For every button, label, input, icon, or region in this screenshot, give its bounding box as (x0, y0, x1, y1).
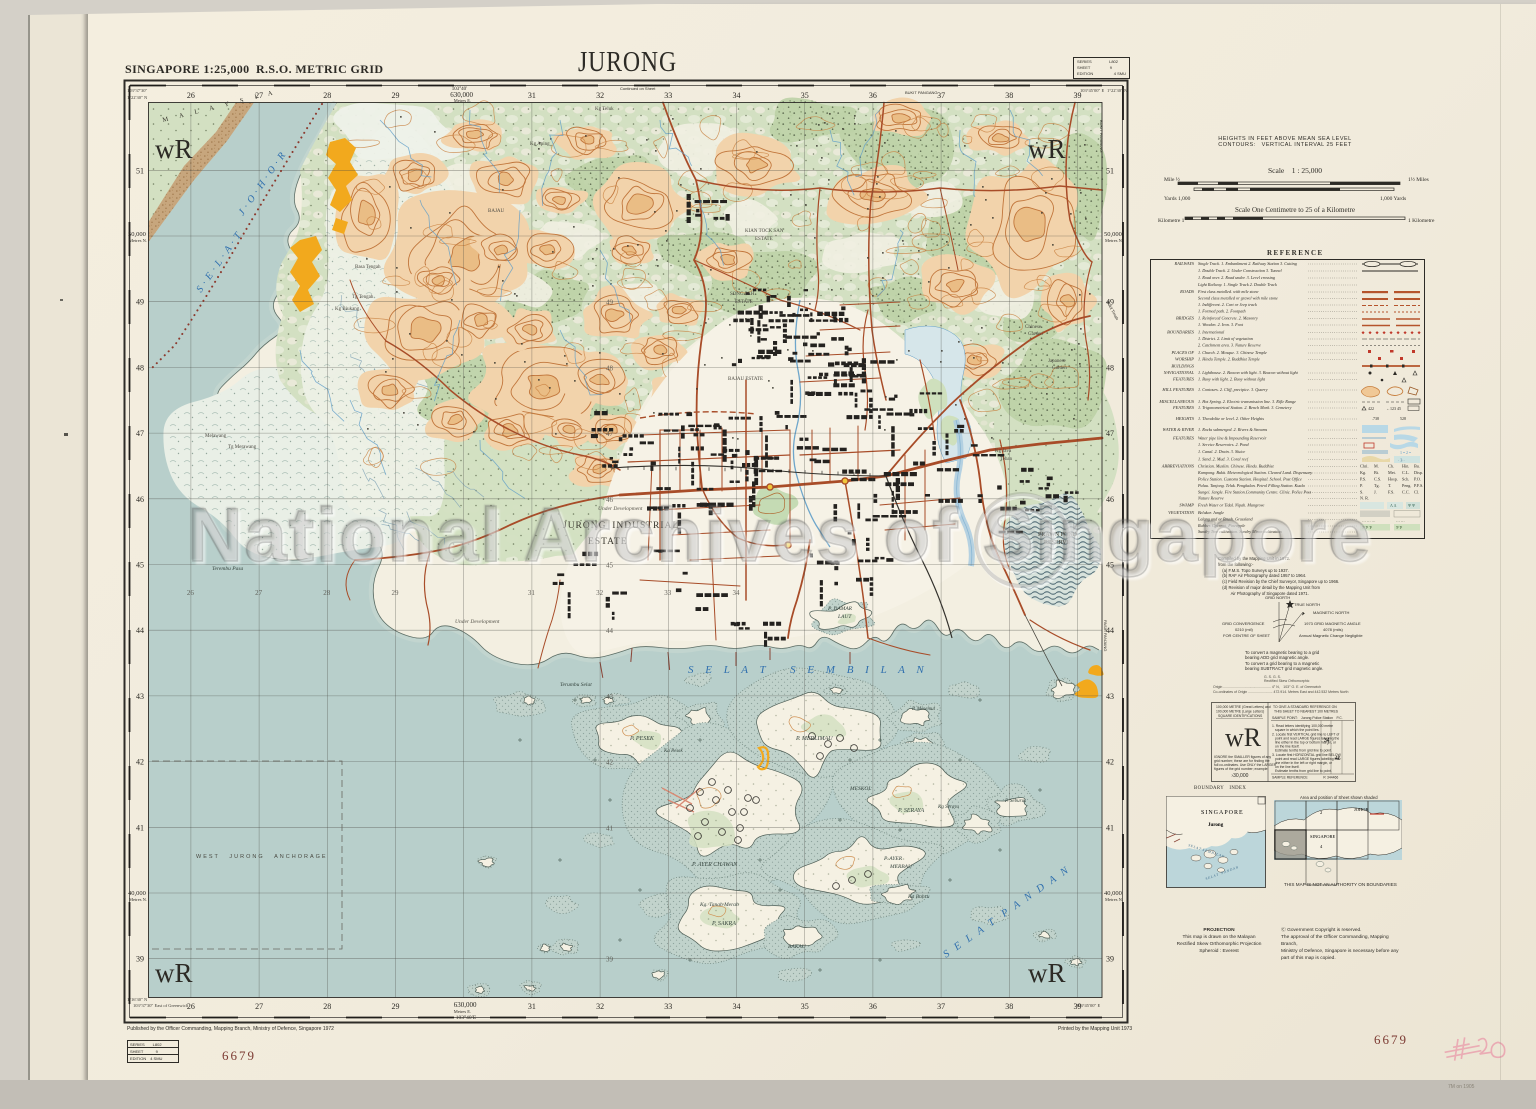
svg-text:MAGNETIC NORTH: MAGNETIC NORTH (1313, 610, 1349, 615)
svg-text:Chinese: Chinese (1025, 325, 1042, 330)
svg-text:HEIGHTS: HEIGHTS (1175, 416, 1195, 421)
svg-text:1½ Miles: 1½ Miles (1408, 176, 1429, 183)
svg-text:Disp.: Disp. (1414, 470, 1423, 475)
svg-text:Garden: Garden (1052, 366, 1067, 371)
svg-text:630,000: 630,000 (454, 1001, 477, 1009)
svg-text:M.: M. (1374, 464, 1379, 469)
svg-text:48: 48 (606, 364, 614, 372)
svg-text:Tg Merawang: Tg Merawang (228, 445, 257, 450)
svg-text:Mile ½: Mile ½ (1164, 176, 1180, 183)
svg-text:P. SAKRA: P. SAKRA (711, 921, 736, 927)
svg-text:103°37′30″: 103°37′30″ (127, 88, 148, 93)
svg-text:35: 35 (801, 91, 809, 100)
svg-text:37: 37 (937, 1002, 945, 1011)
svg-text:40,000: 40,000 (128, 890, 146, 897)
svg-text:50,000: 50,000 (1104, 231, 1122, 238)
svg-text:Jurong: Jurong (1208, 823, 1224, 828)
svg-text:Water pipe line & Impounding: Water pipe line & Impounding Reservoir (1198, 436, 1267, 441)
svg-text:1. Rocks submerged. 2. River: 1. Rocks submerged. 2. Rivers & Streams (1198, 427, 1267, 432)
svg-text:Scale One Centimetre to 25 of: Scale One Centimetre to 25 of a Kilometr… (1235, 206, 1355, 214)
svg-text:Tg Tengah: Tg Tengah (352, 295, 374, 300)
svg-text:34: 34 (733, 589, 741, 597)
svg-text:WATER & RIVER: WATER & RIVER (1163, 427, 1195, 432)
svg-text:38: 38 (1005, 91, 1013, 100)
svg-text:1. International: 1. International (1198, 330, 1225, 335)
svg-text:wR: wR (1028, 134, 1066, 164)
svg-text:47: 47 (1106, 429, 1114, 438)
svg-text:BOUNDARIES: BOUNDARIES (1167, 330, 1195, 335)
svg-text:49: 49 (136, 298, 144, 307)
svg-text:39: 39 (606, 956, 614, 964)
svg-text:wR: wR (1028, 958, 1066, 988)
svg-text:43: 43 (136, 692, 144, 701)
svg-text:35: 35 (801, 1002, 809, 1011)
svg-text:P. DAMAR: P. DAMAR (827, 606, 853, 612)
svg-text:1°16′30″ N: 1°16′30″ N (127, 997, 148, 1002)
svg-text:S E L A T S E M B I L A N: S E L A T S E M B I L A N (688, 664, 928, 676)
svg-text:Metres N.: Metres N. (1105, 238, 1123, 243)
svg-text:BUILDINGS: BUILDINGS (1171, 364, 1194, 369)
svg-text:33: 33 (664, 91, 672, 100)
svg-text:31: 31 (528, 589, 536, 597)
svg-text:1. District. 2. Limit of vege: 1. District. 2. Limit of vegetation (1198, 336, 1253, 341)
svg-text:32: 32 (596, 589, 604, 597)
svg-text:1. Lighthouse. 2. Beacon with: 1. Lighthouse. 2. Beacon with light. 3. … (1198, 370, 1299, 375)
svg-text:37: 37 (937, 91, 945, 100)
svg-text:27: 27 (255, 91, 263, 100)
svg-text:1. Hot Spring. 2. Electric tr: 1. Hot Spring. 2. Electric transmission … (1198, 399, 1296, 404)
svg-text:wR: wR (155, 134, 193, 164)
svg-text:JOHOR: JOHOR (1354, 807, 1369, 812)
svg-text:.738: .738 (1372, 416, 1379, 421)
svg-text:Garden: Garden (1028, 332, 1043, 337)
svg-text:103°37′30″ East of Greenwich: 103°37′30″ East of Greenwich (133, 1003, 189, 1008)
svg-text:R 344466: R 344466 (1323, 776, 1338, 780)
svg-text:29: 29 (392, 589, 400, 597)
svg-text:47: 47 (606, 430, 614, 438)
svg-text:1. Hindu Temple. 2. Buddhist: 1. Hindu Temple. 2. Buddhist Temple (1198, 357, 1260, 362)
svg-text:51: 51 (1106, 166, 1114, 175)
svg-text:100,000 METRE (Great Letters): 100,000 METRE (Great Letters) and (1216, 705, 1271, 709)
svg-text:Kg Seraya: Kg Seraya (937, 805, 959, 810)
svg-text:47: 47 (136, 429, 144, 438)
svg-text:Terumbu Selat: Terumbu Selat (560, 682, 592, 688)
svg-text:39: 39 (136, 955, 144, 964)
svg-text:P. PESEK: P. PESEK (629, 736, 655, 742)
svg-text:SQUARE IDENTIFICATIONS: SQUARE IDENTIFICATIONS (1218, 714, 1263, 718)
svg-text:wR: wR (155, 958, 193, 988)
svg-text:WORSHIP: WORSHIP (1175, 357, 1194, 362)
svg-text:Second class metalled or grav: Second class metalled or gravel with mil… (1198, 296, 1278, 301)
svg-text:32: 32 (596, 1002, 604, 1011)
svg-text:Chri.: Chri. (1360, 464, 1369, 469)
svg-text:Under Development: Under Development (455, 619, 500, 625)
svg-text:Light Railway. 1. Single Tra: Light Railway. 1. Single Track 2. Double… (1197, 282, 1277, 287)
svg-text:P.O.: P.O. (1414, 477, 1421, 482)
svg-text:34: 34 (1324, 738, 1330, 744)
svg-text:BAKAU: BAKAU (788, 944, 807, 950)
svg-text:1. Contours. 2. Cliff, precip: 1. Contours. 2. Cliff, precipice. 3. Qua… (1198, 387, 1268, 393)
svg-text:1. Canal. 2. Drain. 3. Sluic: 1. Canal. 2. Drain. 3. Sluice (1198, 449, 1245, 454)
svg-text:MISCELLANEOUS: MISCELLANEOUS (1158, 399, 1194, 404)
svg-text:26: 26 (187, 91, 195, 100)
svg-text:Japanese: Japanese (1048, 359, 1067, 364)
svg-text:GRID NORTH: GRID NORTH (1265, 595, 1290, 600)
svg-text:SINGAPORE: SINGAPORE (1201, 810, 1244, 816)
svg-text:27: 27 (255, 589, 263, 597)
svg-text:41: 41 (136, 823, 144, 832)
svg-text:P. SERAYA: P. SERAYA (897, 808, 924, 814)
svg-text:103°45′00″ E: 103°45′00″ E (1080, 88, 1105, 93)
svg-text:4078 (mils): 4078 (mils) (1323, 627, 1343, 632)
svg-text:BRIDGES: BRIDGES (1176, 316, 1195, 321)
svg-text:P.F.S.: P.F.S. (1414, 483, 1423, 488)
svg-text:42: 42 (1106, 758, 1114, 767)
svg-text:28: 28 (323, 91, 331, 100)
svg-text:Metres N.: Metres N. (1105, 897, 1123, 902)
svg-text:1. Service Reservoirs. 2. Po: 1. Service Reservoirs. 2. Pond (1198, 442, 1249, 447)
svg-text:1. Wooden. 2. Iron. 3. Foot: 1. Wooden. 2. Iron. 3. Foot (1198, 322, 1244, 327)
svg-text:SAMPLE REFERENCE: SAMPLE REFERENCE (1272, 776, 1308, 780)
svg-text:P. Mesemut: P. Mesemut (911, 707, 936, 712)
svg-text:HILL FEATURES: HILL FEATURES (1161, 387, 1194, 392)
svg-text:square in which the point lies: square in which the point lies. (1275, 728, 1320, 732)
svg-text:P. MERLIMAU: P. MERLIMAU (795, 736, 833, 742)
svg-text:T.: T. (1388, 483, 1391, 488)
svg-text:28: 28 (323, 589, 331, 597)
svg-text:43: 43 (606, 693, 614, 701)
svg-text:26: 26 (187, 589, 195, 597)
svg-text:KIAN TOCK SAN: KIAN TOCK SAN (745, 229, 784, 234)
svg-text:TO GIVE A STANDARD REFERENCE O: TO GIVE A STANDARD REFERENCE ON (1273, 705, 1337, 709)
svg-text:41: 41 (1106, 823, 1114, 832)
svg-text:48: 48 (1106, 363, 1114, 372)
svg-text:50,000: 50,000 (128, 231, 146, 238)
svg-text:ESTATE: ESTATE (755, 237, 773, 242)
svg-text:29: 29 (392, 1002, 400, 1011)
svg-text:Bt.: Bt. (1374, 470, 1379, 475)
svg-text:100,000 METRE (Large Letters): 100,000 METRE (Large Letters) (1216, 710, 1264, 714)
svg-text:Hosp.: Hosp. (1388, 477, 1398, 482)
svg-text:Basa Tengah: Basa Tengah (355, 265, 381, 270)
svg-text:Kg Java: Kg Java (995, 449, 1012, 454)
svg-text:TRUE NORTH: TRUE NORTH (1294, 602, 1320, 607)
svg-text:Kg Biukang: Kg Biukang (335, 307, 360, 312)
svg-text:29: 29 (392, 91, 400, 100)
svg-text:FEATURES: FEATURES (1172, 405, 1195, 410)
svg-text:Ka Pesek: Ka Pesek (663, 749, 684, 754)
svg-text:FEATURES: FEATURES (1172, 377, 1195, 382)
svg-text:38: 38 (1005, 1002, 1013, 1011)
svg-text:43: 43 (1106, 692, 1114, 701)
svg-text:Tg.: Tg. (1374, 483, 1380, 488)
svg-text:Metres N.: Metres N. (129, 897, 147, 902)
svg-text:ESTATE: ESTATE (735, 300, 753, 305)
svg-text:Sch.: Sch. (1402, 477, 1409, 482)
svg-text:34: 34 (733, 91, 741, 100)
svg-text:Peng.: Peng. (1402, 483, 1411, 488)
svg-text:RAILWAYS: RAILWAYS (1173, 261, 1194, 266)
svg-text:Estimate tenths from grid line: Estimate tenths from grid line to point. (1275, 769, 1332, 773)
svg-text:Kg. Tanah Merah: Kg. Tanah Merah (699, 902, 739, 908)
svg-text:Met.: Met. (1388, 470, 1396, 475)
svg-text:Single Track. 1. Embankment: Single Track. 1. Embankment 2. Railway S… (1198, 261, 1297, 266)
svg-text:Kg Teluk: Kg Teluk (595, 107, 614, 112)
svg-text:NAVIGATIONAL: NAVIGATIONAL (1163, 370, 1195, 375)
svg-text:· 3 ·: · 3 · (1398, 458, 1405, 463)
svg-text:ABBREVIATIONS: ABBREVIATIONS (1161, 464, 1195, 469)
svg-text:422: 422 (1368, 406, 1374, 411)
svg-text:Kg Aping: Kg Aping (530, 142, 550, 147)
svg-text:C.L.: C.L. (1402, 470, 1409, 475)
svg-text:1. Formed path. 2. Footpath: 1. Formed path. 2. Footpath (1198, 309, 1246, 314)
svg-text:MERBAU: MERBAU (889, 864, 913, 870)
svg-text:33: 33 (664, 589, 672, 597)
svg-text:P. AYER CHAWAN: P. AYER CHAWAN (691, 862, 738, 868)
svg-text:42: 42 (136, 758, 144, 767)
svg-text:32: 32 (596, 91, 604, 100)
svg-text:48: 48 (136, 363, 144, 372)
svg-text:Scale 1 : 25,000: Scale 1 : 25,000 (1268, 166, 1322, 175)
svg-text:Metres E.: Metres E. (454, 1009, 472, 1014)
svg-text:1. Indifferent. 2. Cart or J: 1. Indifferent. 2. Cart or Jeep track (1198, 302, 1257, 307)
svg-text:Christian. Muslim. Chinese. Hi: Christian. Muslim. Chinese. Hindu. Buddh… (1198, 464, 1274, 469)
svg-text:First class metalled. with mil: First class metalled. with mile stone (1197, 289, 1259, 294)
svg-text:1,000 Yards: 1,000 Yards (1380, 196, 1406, 202)
svg-text:SONG PAH: SONG PAH (730, 292, 755, 297)
svg-text:Estimate tenths from grid line: Estimate tenths from grid line to point. (1275, 749, 1332, 753)
svg-text:Police Station. Customs Stati: Police Station. Customs Station. Hospita… (1197, 477, 1302, 482)
svg-text:›30,000: ›30,000 (1231, 773, 1249, 779)
svg-text:THIS SHEET TO NEAREST 100 METR: THIS SHEET TO NEAREST 100 METRES (1274, 710, 1339, 714)
svg-text:Kampong. Bukit. Meteorologica: Kampong. Bukit. Meteorological Station. … (1197, 470, 1312, 475)
svg-text:PLACES OF: PLACES OF (1170, 350, 1194, 355)
svg-text:1. Sand. 2. Mud. 3. Coral re: 1. Sand. 2. Mud. 3. Coral reef (1198, 457, 1249, 462)
svg-text:wR: wR (1225, 723, 1262, 752)
svg-text:0210 (mil): 0210 (mil) (1235, 627, 1253, 632)
svg-text:28: 28 (323, 1002, 331, 1011)
svg-text:Ch.: Ch. (1388, 464, 1394, 469)
svg-text:WEST JURONG ANCHORAGE: WEST JURONG ANCHORAGE (196, 854, 328, 860)
svg-text:1. Reinforced Concrete. 2. Ma: 1. Reinforced Concrete. 2. Masonry (1198, 316, 1258, 321)
svg-text:51: 51 (136, 166, 144, 175)
svg-text:1973 GRID MAGNETIC ANGLE: 1973 GRID MAGNETIC ANGLE (1304, 621, 1361, 626)
svg-text:1. Trigonometrical Station. 2: 1. Trigonometrical Station. 2. Bench Mar… (1198, 405, 1292, 410)
svg-text:2. Catchment area. 3. Nature: 2. Catchment area. 3. Nature Reserve (1198, 343, 1261, 348)
svg-text:39: 39 (1106, 955, 1114, 964)
svg-text:1. Church. 2. Mosque. 3. Chi: 1. Church. 2. Mosque. 3. Chinese Temple (1198, 350, 1267, 355)
svg-text:528: 528 (1400, 416, 1406, 421)
svg-text:LAUT: LAUT (837, 614, 852, 620)
svg-text:44: 44 (606, 627, 614, 635)
svg-text:P.S.: P.S. (1360, 477, 1366, 482)
svg-text:Hin.: Hin. (1402, 464, 1409, 469)
svg-text:BAJAU ESTATE: BAJAU ESTATE (728, 377, 763, 382)
svg-text:34: 34 (733, 1002, 741, 1011)
svg-text:Metres N.: Metres N. (129, 238, 147, 243)
svg-text:Kg.: Kg. (1360, 470, 1366, 475)
svg-text:Yards 1,000: Yards 1,000 (1164, 196, 1191, 202)
svg-text:33: 33 (664, 1002, 672, 1011)
svg-text:C.S.: C.S. (1374, 477, 1381, 482)
svg-text:figures of the grid number; ex: figures of the grid number; example: (1214, 767, 1268, 771)
svg-text:36: 36 (869, 1002, 877, 1011)
svg-text:46: 46 (1335, 756, 1341, 762)
svg-text:P. Seburus: P. Seburus (1004, 799, 1026, 804)
svg-text:31: 31 (528, 1002, 536, 1011)
svg-text:←123 45: ←123 45 (1386, 406, 1401, 411)
svg-text:1 ⎯ 2 ⎯: 1 ⎯ 2 ⎯ (1400, 450, 1411, 455)
svg-text:45: 45 (136, 561, 144, 570)
svg-text:36: 36 (869, 91, 877, 100)
svg-text:49: 49 (606, 299, 614, 307)
svg-text:27: 27 (255, 1002, 263, 1011)
svg-text:40,000: 40,000 (1104, 890, 1122, 897)
svg-text:103°40′E: 103°40′E (456, 1014, 477, 1021)
svg-text:44: 44 (136, 626, 144, 635)
svg-text:P.: P. (1360, 483, 1363, 488)
svg-text:2: 2 (1320, 810, 1322, 815)
svg-text:Teban: Teban (1000, 457, 1013, 462)
svg-text:MESKOL: MESKOL (849, 786, 871, 792)
svg-text:1 Kilometre: 1 Kilometre (1408, 218, 1435, 224)
svg-text:Melawang: Melawang (205, 434, 227, 439)
svg-text:P. AYER: P. AYER (883, 856, 903, 862)
svg-text:ROADS: ROADS (1179, 289, 1195, 294)
svg-text:Ka Bahru: Ka Bahru (907, 894, 930, 900)
svg-text:31: 31 (528, 91, 536, 100)
svg-text:FOR CENTRE OF SHEET: FOR CENTRE OF SHEET (1223, 633, 1271, 638)
svg-text:41: 41 (606, 824, 614, 832)
svg-text:1°22′30″ N: 1°22′30″ N (127, 95, 148, 100)
svg-text:Bu.: Bu. (1414, 464, 1420, 469)
svg-text:Kilometre 1: Kilometre 1 (1158, 218, 1185, 224)
svg-text:SAMPLE POINT: Jurong Police St: SAMPLE POINT: Jurong Police Station P.C. (1272, 716, 1343, 720)
svg-text:1. Road over. 2. Road under.: 1. Road over. 2. Road under. 3. Level cr… (1198, 275, 1275, 280)
svg-text:46: 46 (136, 495, 144, 504)
svg-text:Pulau. Tanjong. Teluk. Pengkal: Pulau. Tanjong. Teluk. Pengkalan. Petrol… (1197, 483, 1305, 488)
svg-text:42: 42 (606, 759, 614, 767)
svg-text:1. Theodolite or level. 2. O: 1. Theodolite or level. 2. Other Heights (1198, 416, 1264, 421)
svg-text:Metres E.: Metres E. (454, 98, 472, 103)
svg-text:GRID CONVERGENCE: GRID CONVERGENCE (1222, 621, 1265, 626)
svg-text:1. Double Track. 2. Under Co: 1. Double Track. 2. Under Construction 3… (1198, 268, 1282, 273)
svg-text:Annual Magnetic Change Negligi: Annual Magnetic Change Negligible (1299, 633, 1363, 638)
svg-text:SINGAPORE: SINGAPORE (1310, 834, 1336, 839)
svg-text:103°45′00″ E: 103°45′00″ E (1076, 1003, 1101, 1008)
svg-text:FEATURES: FEATURES (1172, 436, 1195, 441)
svg-text:1. Buoy with light. 2. Buoy w: 1. Buoy with light. 2. Buoy without ligh… (1198, 377, 1266, 382)
svg-text:BAJAU: BAJAU (488, 209, 505, 214)
svg-text:1°22′30″ N: 1°22′30″ N (1107, 88, 1128, 93)
svg-text:26: 26 (187, 1002, 195, 1011)
